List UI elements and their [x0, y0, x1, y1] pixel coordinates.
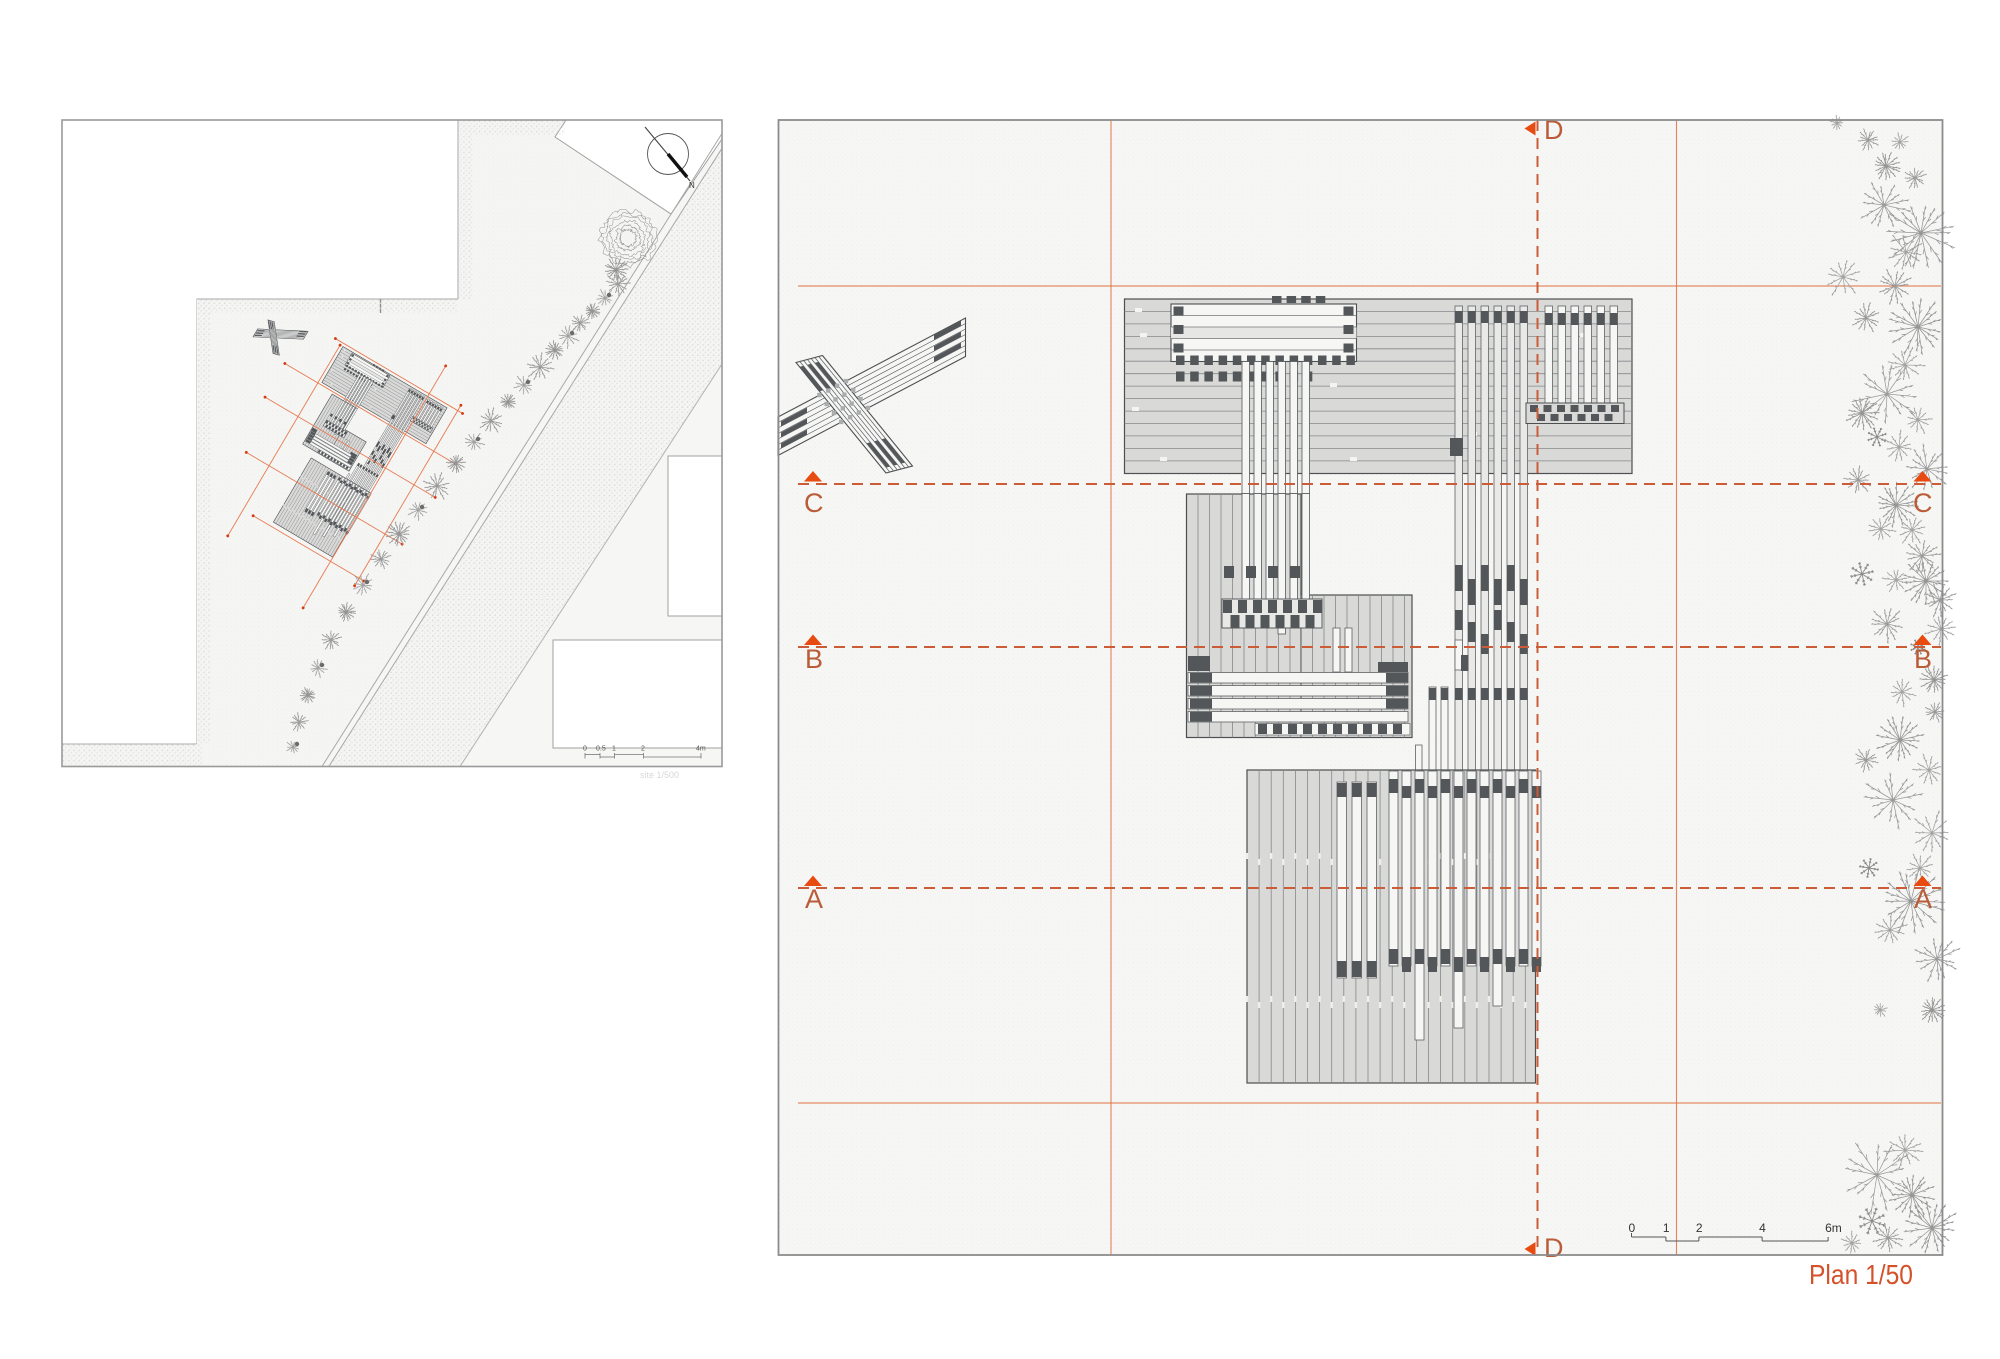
svg-text:0.5: 0.5: [596, 746, 606, 753]
svg-text:D: D: [1544, 1233, 1564, 1263]
svg-text:2: 2: [1696, 1221, 1703, 1235]
svg-text:4m: 4m: [696, 746, 706, 753]
svg-text:0: 0: [583, 746, 587, 753]
svg-text:6m: 6m: [1825, 1221, 1842, 1235]
svg-text:B: B: [1914, 644, 1932, 674]
svg-text:2: 2: [641, 746, 645, 753]
svg-text:C: C: [1913, 488, 1933, 518]
svg-text:N: N: [689, 181, 695, 190]
svg-text:A: A: [1914, 884, 1932, 914]
svg-text:1: 1: [612, 746, 616, 753]
svg-text:0: 0: [1629, 1221, 1636, 1235]
svg-text:B: B: [805, 644, 823, 674]
svg-text:Plan 1/50: Plan 1/50: [1809, 1259, 1913, 1290]
svg-text:C: C: [804, 488, 824, 518]
svg-text:1: 1: [1663, 1221, 1670, 1235]
svg-text:site 1/500: site 1/500: [640, 770, 679, 780]
svg-text:4: 4: [1759, 1221, 1766, 1235]
svg-text:A: A: [805, 884, 823, 914]
